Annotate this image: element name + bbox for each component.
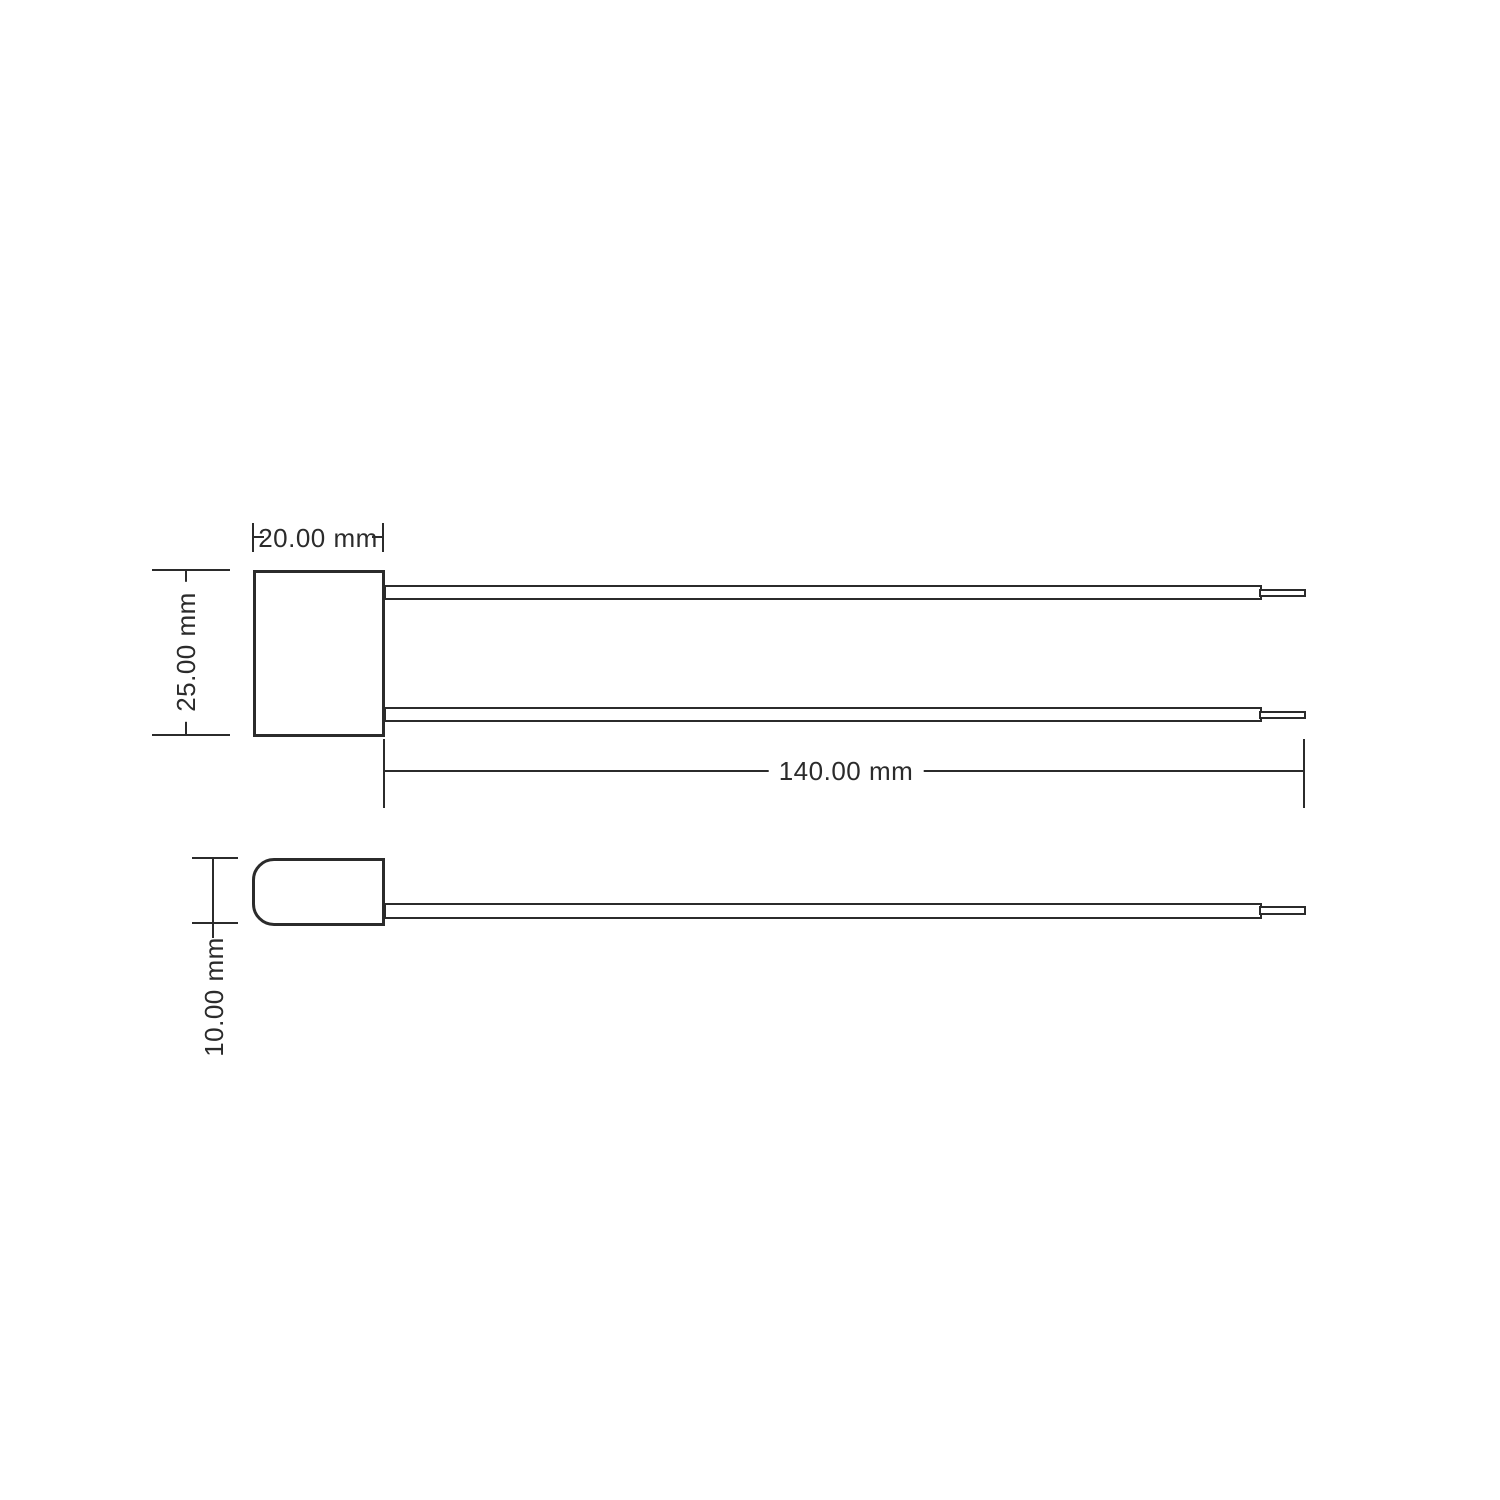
lead-length-dim-label: 140.00 mm bbox=[769, 756, 924, 786]
width-dim-tick-right bbox=[382, 523, 384, 552]
height-dim-ext-line-bottom bbox=[152, 734, 230, 736]
width-dim-label: 20.00 mm bbox=[258, 525, 378, 551]
front-view-lead-bottom bbox=[384, 707, 1262, 722]
side-view-body-outline bbox=[252, 858, 385, 926]
thickness-dim-ext-line-top bbox=[192, 857, 238, 859]
side-view-lead-bare-tip bbox=[1259, 906, 1306, 915]
thickness-dim-line bbox=[212, 858, 214, 938]
lead-length-dim-tick-left bbox=[383, 739, 385, 808]
height-dim-ext-line-top bbox=[152, 569, 230, 571]
height-dim-label: 25.00 mm bbox=[171, 582, 201, 722]
drawing-canvas: 20.00 mm 25.00 mm 140.00 mm 10.00 mm bbox=[0, 0, 1500, 1500]
front-view-lead-top bbox=[384, 585, 1262, 600]
thickness-dim-ext-line-bottom bbox=[192, 922, 238, 924]
front-view-body-outline bbox=[253, 570, 385, 737]
front-view-lead-bottom-bare-tip bbox=[1259, 711, 1306, 719]
lead-length-dim-tick-right bbox=[1303, 739, 1305, 808]
side-view-lead bbox=[384, 903, 1262, 919]
front-view-lead-top-bare-tip bbox=[1259, 589, 1306, 597]
thickness-dim-label: 10.00 mm bbox=[201, 937, 227, 1057]
